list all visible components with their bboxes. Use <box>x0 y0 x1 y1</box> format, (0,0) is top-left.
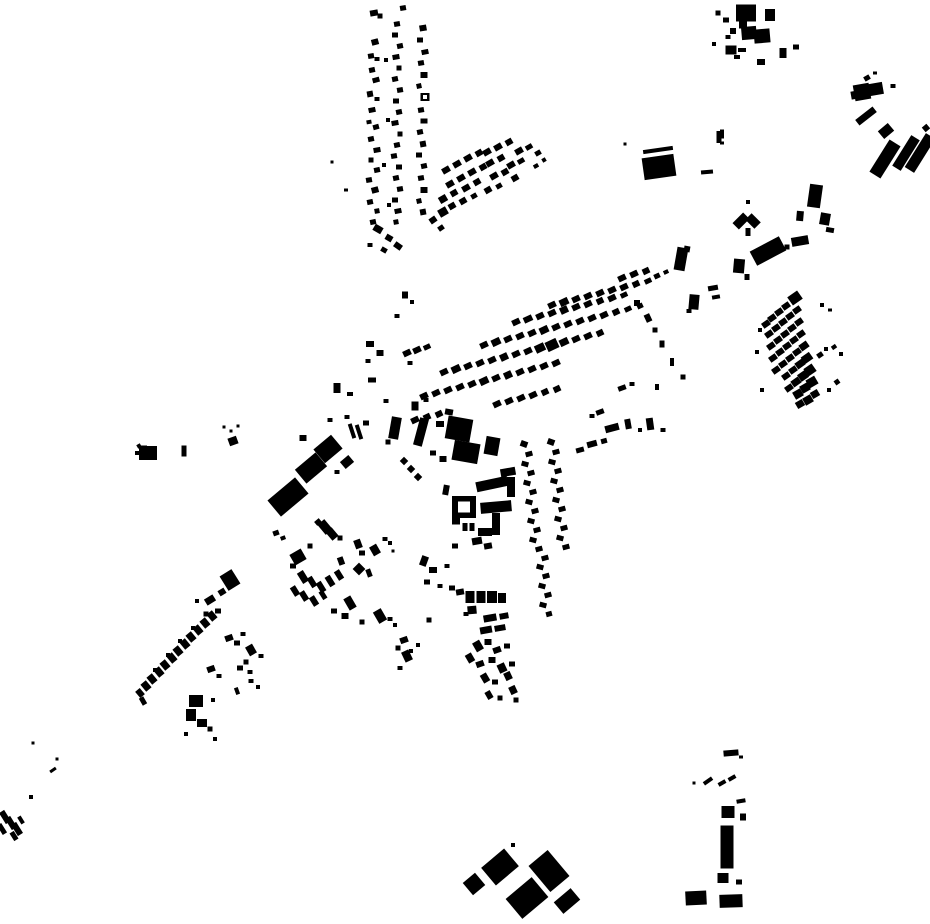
building-footprint <box>571 335 581 344</box>
building-footprint <box>416 153 422 158</box>
building-footprint <box>472 178 481 187</box>
building-footprint <box>215 609 221 614</box>
building-footprint <box>393 623 397 627</box>
building-footprint <box>525 499 533 506</box>
building-footprint <box>503 671 513 681</box>
building-footprint <box>244 660 249 665</box>
building-footprint <box>494 624 506 632</box>
building-footprint <box>869 139 900 178</box>
building-footprint <box>345 415 350 419</box>
building-footprint <box>493 142 503 151</box>
building-footprint <box>387 203 391 207</box>
building-footprint <box>487 591 497 603</box>
building-footprint <box>397 43 404 49</box>
building-footprint <box>548 459 556 466</box>
building-footprint <box>552 449 560 456</box>
building-footprint <box>347 392 353 396</box>
building-footprint <box>632 280 641 288</box>
building-footprint <box>498 696 503 701</box>
building-footprint <box>764 329 774 339</box>
building-footprint <box>525 143 534 151</box>
building-footprint <box>245 644 257 657</box>
building-footprint <box>430 451 436 456</box>
building-footprint <box>595 289 605 298</box>
building-footprint <box>738 48 746 52</box>
building-footprint <box>922 124 930 132</box>
building-footprint <box>550 478 558 485</box>
building-footprint <box>439 368 449 377</box>
building-footprint <box>819 212 831 226</box>
building-footprint <box>377 350 384 356</box>
building-footprint <box>397 87 404 93</box>
building-footprint <box>716 11 721 16</box>
building-footprint <box>506 160 516 169</box>
building-footprint <box>775 347 785 357</box>
building-footprint <box>368 243 373 247</box>
building-footprint <box>388 416 402 439</box>
building-footprint <box>575 447 584 454</box>
building-footprint <box>765 9 775 21</box>
building-footprint <box>785 353 795 363</box>
building-footprint <box>420 209 427 216</box>
building-footprint <box>297 570 309 584</box>
building-footprint <box>392 54 400 60</box>
building-footprint <box>534 342 546 353</box>
building-footprint <box>721 826 734 869</box>
building-footprint <box>466 591 475 603</box>
building-footprint <box>400 5 407 11</box>
building-footprint <box>372 124 379 130</box>
building-footprint <box>340 455 354 469</box>
building-footprint <box>386 118 390 122</box>
building-footprint <box>421 119 428 124</box>
building-footprint <box>492 400 502 409</box>
building-footprint <box>418 107 425 113</box>
building-footprint <box>197 719 207 727</box>
building-footprint <box>249 679 254 683</box>
building-footprint <box>365 568 372 577</box>
building-footprint <box>642 267 651 275</box>
building-footprint <box>334 569 344 581</box>
building-footprint <box>410 300 414 304</box>
building-footprint <box>595 408 604 415</box>
building-footprint <box>478 528 492 536</box>
building-footprint <box>384 234 393 243</box>
building-footprint <box>331 609 337 614</box>
building-footprint <box>412 402 419 411</box>
building-footprint <box>418 175 425 181</box>
building-footprint <box>217 674 222 678</box>
building-footprint <box>757 59 765 65</box>
building-footprint <box>445 408 454 415</box>
building-footprint <box>199 617 210 628</box>
building-footprint <box>663 269 669 275</box>
building-footprint <box>402 292 408 299</box>
building-footprint <box>393 175 400 181</box>
building-footprint <box>208 727 213 732</box>
building-footprint <box>554 888 580 914</box>
building-footprint <box>504 397 514 406</box>
building-footprint <box>796 329 806 339</box>
building-footprint <box>417 129 424 135</box>
building-footprint <box>644 277 652 284</box>
building-footprint <box>873 72 877 75</box>
building-footprint <box>551 359 561 368</box>
building-footprint <box>391 120 399 126</box>
building-footprint <box>366 120 372 125</box>
building-footprint <box>234 641 240 646</box>
building-footprint <box>693 782 696 785</box>
building-footprint <box>374 208 380 214</box>
building-footprint <box>891 84 896 88</box>
building-footprint <box>684 246 691 253</box>
building-footprint <box>655 384 659 390</box>
building-footprint <box>544 592 552 599</box>
building-footprint <box>554 516 562 523</box>
building-footprint <box>515 332 525 341</box>
building-footprint <box>644 313 653 323</box>
building-footprint <box>463 873 486 896</box>
building-footprint <box>380 246 388 253</box>
map-canvas <box>0 0 930 924</box>
building-footprint <box>703 776 713 785</box>
building-footprint <box>237 666 243 671</box>
building-footprint <box>472 640 484 653</box>
building-footprint <box>373 608 387 624</box>
building-footprint <box>447 202 456 211</box>
building-footprint <box>429 567 437 573</box>
building-footprint <box>746 200 750 204</box>
building-footprint <box>492 513 500 535</box>
building-footprint <box>571 303 581 312</box>
building-footprint <box>642 154 677 180</box>
building-footprint <box>360 620 365 625</box>
building-footprint <box>541 388 550 396</box>
building-footprint <box>224 634 234 642</box>
building-footprint <box>780 48 787 58</box>
building-footprint <box>400 457 408 465</box>
building-footprint <box>424 580 430 585</box>
building-footprint <box>363 421 369 426</box>
building-footprint <box>562 544 570 551</box>
building-footprint <box>388 541 392 545</box>
building-footprint <box>481 849 519 886</box>
building-footprint <box>449 586 455 591</box>
building-footprint <box>172 645 183 656</box>
building-footprint <box>431 389 441 398</box>
building-footprint <box>369 158 374 163</box>
building-footprint <box>153 668 157 672</box>
building-footprint <box>394 208 402 214</box>
building-footprint <box>538 583 546 590</box>
building-footprint <box>241 632 246 636</box>
building-footprint <box>556 535 564 542</box>
building-footprint <box>688 294 699 310</box>
building-footprint <box>509 662 515 667</box>
building-footprint <box>544 338 559 352</box>
building-footprint <box>712 294 721 299</box>
building-footprint <box>482 147 492 156</box>
building-footprint <box>553 385 562 393</box>
building-footprint <box>475 359 485 368</box>
building-footprint <box>421 163 428 169</box>
building-footprint <box>166 653 170 657</box>
building-footprint <box>416 83 422 89</box>
building-footprint <box>470 523 475 531</box>
building-footprint <box>366 359 371 363</box>
building-footprint <box>787 290 803 305</box>
building-footprint <box>504 138 513 147</box>
building-footprint <box>796 211 804 222</box>
building-footprint <box>186 709 196 721</box>
building-footprint <box>289 549 306 566</box>
building-footprint <box>863 74 871 81</box>
building-footprint <box>211 698 215 702</box>
building-footprint <box>420 141 427 148</box>
building-footprint <box>397 186 404 192</box>
building-footprint <box>223 426 226 429</box>
building-footprint <box>280 535 286 540</box>
building-footprint <box>523 347 533 356</box>
building-footprint <box>607 286 617 295</box>
building-footprint <box>508 685 518 695</box>
building-footprint <box>393 241 403 251</box>
building-footprint <box>527 329 537 338</box>
building-footprint <box>723 749 738 756</box>
building-footprint <box>369 544 381 557</box>
building-footprint <box>499 352 509 362</box>
building-footprint <box>480 500 512 514</box>
building-footprint <box>736 798 746 804</box>
building-footprint <box>541 555 549 562</box>
building-footprint <box>366 177 373 183</box>
building-footprint <box>708 285 719 292</box>
building-footprint <box>467 167 477 176</box>
building-footprint <box>398 132 403 137</box>
building-footprint <box>643 146 673 154</box>
building-footprint <box>701 169 713 174</box>
building-footprint <box>325 575 336 588</box>
building-footprint <box>449 189 458 198</box>
building-footprint <box>739 756 743 759</box>
building-footprint <box>746 228 751 236</box>
building-footprint <box>590 414 595 418</box>
building-footprint <box>527 518 535 525</box>
building-footprint <box>335 470 340 474</box>
building-footprint <box>504 644 510 649</box>
building-footprint <box>396 109 403 115</box>
building-footprint <box>383 537 388 541</box>
building-footprint <box>542 573 550 580</box>
building-footprint <box>816 351 824 359</box>
building-footprint <box>484 436 501 456</box>
building-footprint <box>185 631 196 642</box>
building-footprint <box>370 219 377 225</box>
building-footprint <box>416 198 422 204</box>
building-footprint <box>184 732 188 736</box>
building-footprint <box>717 131 722 143</box>
building-footprint <box>392 550 395 553</box>
building-footprint <box>781 301 791 311</box>
building-footprint <box>445 564 450 568</box>
building-footprint <box>421 187 428 193</box>
building-footprint <box>421 49 429 55</box>
building-footprint <box>328 418 333 422</box>
building-footprint <box>227 436 238 447</box>
building-footprint <box>558 297 569 307</box>
building-footprint <box>507 477 515 497</box>
building-footprint <box>612 308 621 316</box>
building-footprint <box>653 328 658 333</box>
building-footprint <box>718 873 729 883</box>
building-footprint <box>820 303 824 307</box>
building-footprint <box>366 341 374 347</box>
building-footprint <box>523 314 534 323</box>
building-footprint <box>495 182 503 189</box>
building-footprint <box>477 591 486 603</box>
building-footprint <box>850 90 859 99</box>
building-footprint <box>204 612 209 617</box>
building-footprint <box>529 489 537 496</box>
building-footprint <box>135 688 145 698</box>
building-footprint <box>392 198 398 203</box>
building-footprint <box>525 451 533 458</box>
building-footprint <box>531 508 539 515</box>
building-footprint <box>766 341 776 351</box>
building-footprint <box>491 374 501 383</box>
building-footprint <box>827 388 831 392</box>
building-footprint <box>309 595 319 607</box>
building-footprint <box>630 382 635 386</box>
building-footprint <box>394 142 401 148</box>
building-footprint <box>740 814 746 821</box>
building-footprint <box>438 584 443 588</box>
building-footprint <box>490 337 501 347</box>
building-footprint <box>575 317 585 326</box>
building-footprint <box>396 165 402 170</box>
building-footprint <box>620 291 628 298</box>
building-footprint <box>496 154 505 163</box>
building-footprint <box>560 525 568 532</box>
building-footprint <box>545 611 552 617</box>
building-footprint <box>371 38 379 46</box>
building-footprint <box>368 107 376 113</box>
building-footprint <box>596 297 605 305</box>
building-footprint <box>558 337 569 347</box>
building-footprint <box>483 186 492 195</box>
building-footprint <box>372 77 380 84</box>
building-footprint <box>29 795 33 799</box>
building-footprint <box>49 767 56 773</box>
building-footprint <box>416 643 420 647</box>
building-footprint <box>719 894 742 908</box>
building-footprint <box>440 456 447 462</box>
building-footprint <box>831 344 837 350</box>
building-footprint <box>237 425 240 428</box>
building-footprint <box>489 657 496 663</box>
building-footprint <box>586 440 597 448</box>
building-footprint <box>393 99 399 104</box>
building-footprint <box>344 189 348 192</box>
building-footprint <box>485 639 492 645</box>
building-footprint <box>368 53 375 59</box>
building-footprint <box>412 346 422 355</box>
building-footprint <box>464 612 469 616</box>
building-footprint <box>206 665 216 673</box>
building-footprint <box>371 186 379 194</box>
building-footprint <box>436 421 444 427</box>
building-footprint <box>399 636 409 644</box>
building-footprint <box>392 33 398 38</box>
building-footprint <box>338 536 343 541</box>
building-footprint <box>428 216 437 225</box>
building-footprint <box>583 332 593 341</box>
building-footprint <box>826 227 835 233</box>
building-footprint <box>583 292 593 301</box>
building-footprint <box>563 320 573 329</box>
building-footprint <box>723 18 729 23</box>
building-footprint <box>17 816 25 825</box>
building-footprint <box>367 199 374 205</box>
building-footprint <box>427 618 432 623</box>
building-footprint <box>0 823 7 835</box>
building-footprint <box>189 695 203 707</box>
building-footprint <box>474 149 483 158</box>
building-footprint <box>552 497 560 504</box>
building-footprint <box>718 779 727 786</box>
building-footprint <box>424 398 429 402</box>
building-footprint <box>484 542 493 549</box>
building-footprint <box>382 163 386 167</box>
building-footprint <box>538 325 549 335</box>
building-footprint <box>146 673 157 684</box>
building-footprint <box>479 626 492 635</box>
building-footprint <box>834 379 841 386</box>
building-footprint <box>484 690 493 700</box>
building-footprint <box>726 46 737 55</box>
building-footprint <box>394 21 401 27</box>
building-footprint <box>604 423 619 433</box>
building-footprint <box>463 362 473 371</box>
building-footprint <box>533 527 541 534</box>
building-footprint <box>375 97 380 101</box>
building-footprint <box>534 149 542 156</box>
building-footprint <box>463 153 473 162</box>
building-footprint <box>478 376 489 386</box>
building-footprint <box>259 654 264 658</box>
building-footprint <box>456 588 465 595</box>
building-footprint <box>536 564 544 571</box>
building-footprint <box>547 438 556 446</box>
building-footprint <box>687 309 692 313</box>
building-footprint <box>758 328 762 332</box>
building-footprint <box>435 410 444 418</box>
building-footprint <box>367 91 374 98</box>
building-footprint <box>423 343 431 350</box>
building-footprint <box>855 106 877 125</box>
building-footprint <box>272 530 279 537</box>
building-footprint <box>878 123 894 139</box>
building-footprint <box>607 294 617 303</box>
building-footprint <box>391 153 398 159</box>
building-footprint <box>685 890 707 905</box>
building-footprint <box>438 194 448 204</box>
building-footprint <box>807 184 823 209</box>
building-footprint <box>773 335 783 345</box>
building-footprint <box>547 309 557 318</box>
building-footprint <box>417 38 423 43</box>
courtyard-hole <box>423 95 427 99</box>
